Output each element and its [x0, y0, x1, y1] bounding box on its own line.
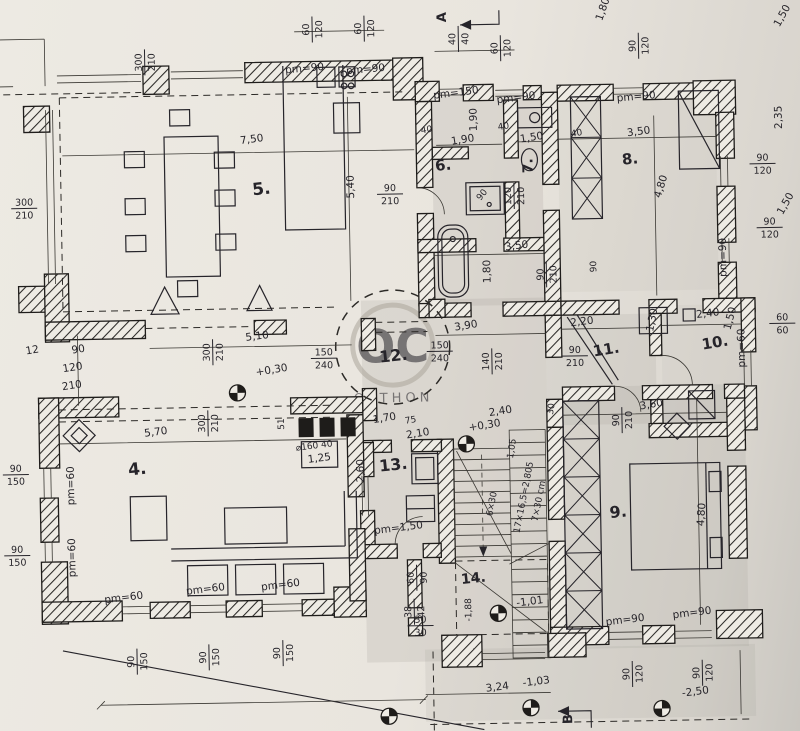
dimension-label: 12 [25, 343, 40, 357]
rect-shape [216, 234, 236, 250]
rect-shape [411, 439, 441, 452]
rect-shape [177, 281, 197, 297]
text-shape: 5,40 [345, 175, 357, 199]
text-shape: 210 [61, 378, 83, 393]
rect-shape [245, 60, 417, 83]
text-shape: 210 [215, 343, 226, 361]
rect-shape [561, 300, 619, 315]
text-shape: 40 [420, 125, 433, 137]
text-shape: 150 [8, 558, 26, 569]
rect-shape [643, 625, 675, 644]
text-shape: 5. [251, 179, 271, 201]
dimension-label: 1,90 [468, 108, 480, 132]
rect-shape [417, 213, 435, 305]
dimension-label: 120 [62, 360, 84, 375]
floor-plan-svg: OC OTTHON [0, 0, 800, 731]
text-shape: 150 [139, 652, 150, 670]
text-shape: 120 [366, 19, 377, 37]
room-number-label: 6. [434, 155, 452, 175]
elevation-benchmark-icon [458, 436, 474, 452]
rect-shape [503, 301, 561, 316]
text-shape: 120 [704, 663, 715, 681]
text-shape: A [435, 12, 450, 22]
text-shape: 120 [640, 36, 651, 54]
dimension-label: 2,60 [355, 459, 367, 483]
rect-shape [215, 190, 235, 206]
text-shape: 30 [414, 615, 426, 626]
text-shape: 40 [447, 33, 458, 45]
text-shape: 30 [415, 628, 427, 639]
line-shape [513, 645, 549, 646]
text-shape: 210 [210, 414, 221, 432]
text-shape: 240 [315, 360, 333, 371]
rect-shape [429, 299, 445, 317]
rect-shape [442, 635, 483, 668]
text-shape: 90 [627, 40, 638, 52]
dimension-label: pm=60 [66, 538, 79, 577]
text-shape: 300 [197, 414, 208, 432]
text-shape: 150 [315, 347, 333, 358]
rect-shape [548, 633, 586, 658]
dimension-label: 90150 [3, 463, 29, 487]
dimension-label: -1,88 [464, 598, 474, 622]
text-shape: 4,80 [695, 502, 709, 526]
text-shape: 60 [776, 312, 788, 323]
text-shape: 90 [756, 153, 768, 164]
text-shape: 90 [691, 667, 702, 679]
text-shape: 240 [431, 353, 449, 364]
text-shape: 13. [378, 454, 408, 476]
text-shape: 4. [127, 459, 147, 481]
dimension-label: 1,80 [481, 260, 493, 284]
dimension-label: 60120 [301, 16, 325, 42]
text-shape: 120 [761, 229, 779, 240]
plant-diamond [63, 419, 96, 452]
text-shape: 150 [431, 340, 449, 351]
dimension-label: pm=60 [104, 590, 144, 607]
pantry-partition [283, 65, 346, 230]
text-shape: 40 [570, 128, 583, 140]
text-shape: 60 [776, 325, 788, 336]
dimension-label: 40 [497, 121, 510, 133]
room-number-label: 12. [378, 345, 408, 367]
elevation-benchmark-icon [654, 700, 670, 716]
line-shape [511, 543, 547, 544]
rect-shape [727, 398, 746, 450]
text-shape: 120 [502, 39, 513, 57]
text-shape: 1,50 [775, 191, 797, 217]
text-shape: pm=60 [104, 590, 144, 607]
text-shape: pm=90 [717, 238, 730, 277]
text-shape: 8. [621, 149, 639, 169]
text-shape: 300 [134, 53, 145, 71]
line-shape [511, 556, 547, 557]
rect-shape [125, 198, 145, 214]
dimension-label: 60120 [353, 15, 377, 41]
text-shape: pm=60 [66, 538, 79, 577]
text-shape: 40 [497, 121, 510, 133]
dimension-label: pm=60 [735, 328, 748, 367]
rect-shape [361, 544, 397, 559]
text-shape: 9. [609, 501, 628, 522]
dimension-label: 90150 [272, 640, 296, 666]
dimension-label: 1,80 [594, 0, 613, 22]
rect-shape [693, 80, 736, 115]
text-shape: 75 [404, 415, 417, 427]
rect-shape [541, 92, 559, 184]
text-shape: 60 [489, 42, 500, 54]
room-number-label: 9. [609, 501, 628, 522]
rect-shape [39, 398, 60, 468]
dimension-label: 4,80 [695, 502, 709, 526]
dimension-label: 5,70 [143, 425, 168, 440]
dimension-label: 90150 [198, 644, 222, 670]
text-shape: 210 [15, 210, 33, 221]
text-shape: 210 [516, 187, 527, 205]
text-shape: 30 [546, 402, 558, 415]
dimension-label: 90 [71, 343, 86, 357]
text-shape: 1,90 [468, 108, 480, 132]
section-marker-label: A [435, 12, 450, 22]
dimension-label: 210 [61, 378, 83, 393]
section-a-arrowhead-icon [460, 20, 471, 30]
text-shape: 300 [15, 197, 33, 208]
text-shape: 90 [10, 464, 22, 475]
sideboard [333, 103, 360, 133]
rect-shape [415, 101, 432, 187]
rect-shape [150, 602, 190, 619]
text-shape: 1,80 [594, 0, 613, 22]
text-shape: 150 [211, 648, 222, 666]
circle-shape [348, 83, 354, 89]
text-shape: 210 [147, 53, 158, 71]
text-shape: 90 [198, 651, 209, 663]
rect-shape [320, 418, 334, 436]
room-number-label: 13. [378, 454, 408, 476]
text-shape: 12 [25, 343, 40, 357]
dimension-label: 90120 [756, 216, 782, 240]
text-shape: 7,50 [239, 132, 264, 147]
text-shape: 90 [384, 183, 396, 194]
rect-shape [716, 610, 762, 639]
dimension-label: 90150 [126, 648, 150, 674]
coffee-table [224, 507, 287, 544]
dimension-label: 300210 [11, 197, 37, 221]
text-shape: 90 [569, 345, 581, 356]
dimension-label: pm=90 [717, 238, 730, 277]
text-shape: 90 [126, 656, 137, 668]
dimension-label: 90 [589, 261, 599, 273]
dimension-label: 60120 [489, 35, 513, 61]
text-shape: pm=60 [65, 466, 78, 505]
text-shape: -1,88 [464, 598, 474, 622]
dimension-label: 300210 [197, 410, 221, 436]
scanned-floor-plan: OC OTTHON [0, 0, 800, 731]
text-shape: 2,60 [355, 459, 367, 483]
text-shape: 90 [763, 216, 775, 227]
dimension-label: 90150 [4, 544, 30, 568]
rect-shape [562, 386, 614, 401]
text-shape: 210 [381, 196, 399, 207]
rect-shape [299, 419, 313, 437]
text-shape: 210 [566, 358, 584, 369]
dimension-label: 1,50 [775, 191, 797, 217]
rect-shape [45, 320, 145, 340]
dimension-label: pm=60 [65, 466, 78, 505]
rect-shape [170, 110, 190, 126]
armchair [130, 496, 167, 541]
text-shape: 150 [285, 644, 296, 662]
dimension-label: 1,50 [771, 3, 793, 29]
dimension-label: 2,35 [773, 106, 785, 130]
rect-shape [545, 315, 562, 357]
text-shape: 140 [481, 352, 492, 370]
text-shape: 60 [406, 572, 417, 584]
dimension-label: 30 [546, 402, 558, 415]
rect-shape [543, 210, 561, 303]
rect-shape [717, 186, 736, 242]
text-shape: 7. [520, 158, 536, 173]
text-shape: 210 [624, 411, 635, 429]
text-shape: 6. [434, 155, 452, 175]
text-shape: 90 [621, 668, 632, 680]
room-number-label: 5. [251, 179, 271, 201]
dimension-label: 40 [420, 125, 433, 137]
text-shape: 2,35 [773, 106, 785, 130]
dimension-label: 6060 [769, 312, 795, 336]
text-shape: 5,70 [143, 425, 168, 440]
g-shape: OC OTTHON [0, 0, 800, 731]
text-shape: pm=60 [735, 328, 748, 367]
text-shape: 38 [403, 606, 414, 618]
text-shape: 120 [503, 187, 514, 205]
elevation-benchmark-icon [381, 708, 397, 724]
line-shape [513, 632, 549, 633]
rect-shape [214, 152, 234, 168]
dimension-label: 4040 [447, 26, 471, 52]
radiator-triangles [151, 285, 272, 314]
rect-shape [549, 541, 567, 631]
text-shape: 90 [419, 571, 430, 583]
text-shape: 14. [460, 570, 486, 589]
text-shape: 12. [378, 345, 408, 367]
line-shape [512, 569, 548, 570]
path-shape [0, 39, 45, 87]
text-shape: 1,25 [307, 451, 332, 466]
circle-shape [341, 83, 347, 89]
rect-shape [302, 599, 334, 616]
dimension-label: 7,50 [239, 132, 264, 147]
text-shape: pm=60 [260, 577, 300, 594]
text-shape: 90 [589, 261, 599, 273]
text-shape: 210 [548, 265, 559, 283]
elevation-benchmark-icon [229, 385, 245, 401]
text-shape: 1,50 [771, 3, 793, 29]
dimension-label: 90120 [749, 152, 775, 176]
rect-shape [547, 427, 565, 519]
text-shape: 120 [754, 165, 772, 176]
dimension-label: 75 [404, 415, 417, 427]
rect-shape [40, 498, 59, 542]
corner-sofa [170, 491, 357, 561]
dining-table [164, 136, 220, 277]
text-shape: 60 [353, 23, 364, 35]
line-shape [512, 581, 548, 582]
rect-shape [226, 600, 262, 617]
elevation-benchmark-icon [523, 700, 539, 716]
dimension-label: 51 [277, 418, 287, 430]
dimension-label: 5,40 [345, 175, 357, 199]
rect-shape [724, 384, 744, 398]
elevation-benchmark-icon [490, 605, 506, 621]
text-shape: 120 [634, 665, 645, 683]
text-shape: 90 [611, 414, 622, 426]
dimension-label: 40 [570, 128, 583, 140]
text-shape: 150 [7, 477, 25, 488]
text-shape: B [561, 714, 576, 724]
text-shape: 51 [277, 418, 287, 430]
dimension-label: pm=60 [260, 577, 300, 594]
text-shape: 300 [202, 343, 213, 361]
room-number-label: 14. [460, 570, 486, 589]
dimension-label: 5,10 [245, 329, 270, 344]
text-shape: 1,80 [481, 260, 493, 284]
dimension-label: 300210 [202, 339, 226, 365]
text-shape: +0,30 [255, 362, 289, 379]
rect-shape [126, 235, 146, 251]
text-shape: 90 [535, 268, 546, 280]
rect-shape [728, 466, 748, 558]
dimension-label: 150240 [311, 347, 337, 371]
text-shape: 120 [62, 360, 84, 375]
dimension-label: 90120 [627, 33, 651, 59]
rect-shape [423, 543, 441, 557]
rect-shape [361, 318, 376, 350]
rect-shape [124, 151, 144, 167]
text-shape: 90 [71, 343, 86, 357]
text-shape: 40 [460, 33, 471, 45]
text-shape: 120 [314, 20, 325, 38]
room-number-label: 4. [127, 459, 147, 481]
text-shape: 210 [494, 352, 505, 370]
text-shape: 60 [301, 23, 312, 35]
text-shape: 90 [11, 545, 23, 556]
dimension-label: +0,30 [255, 362, 289, 379]
rect-shape [557, 84, 613, 101]
room-number-label: 8. [621, 149, 639, 169]
room-number-label: 7. [520, 158, 536, 173]
dimension-label: 90210 [377, 183, 403, 207]
dimension-label: 1,25 [307, 451, 332, 466]
text-shape: 90 [272, 647, 283, 659]
section-marker-label: B [561, 714, 576, 724]
text-shape: 5,10 [245, 329, 270, 344]
rect-shape [341, 418, 355, 436]
